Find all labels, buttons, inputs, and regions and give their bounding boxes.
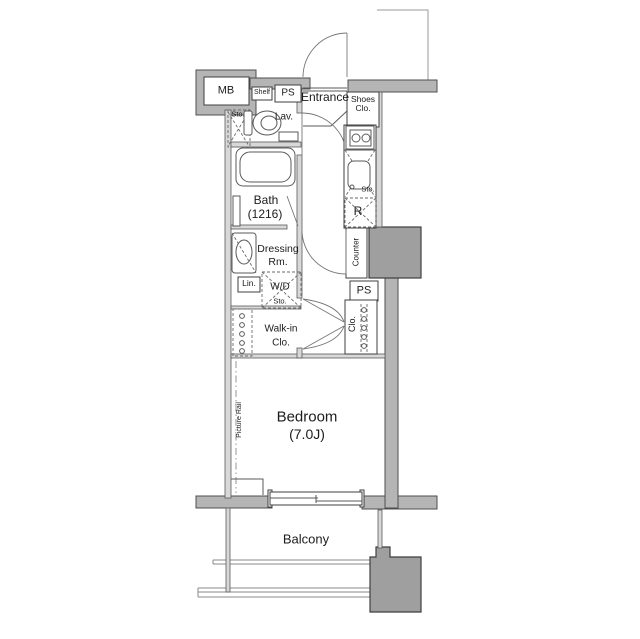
pillar-balcony <box>370 547 421 612</box>
mid-door-swing <box>302 230 346 274</box>
label-bedroom-l1: Bedroom <box>277 408 338 425</box>
label-refrigerator: R <box>354 205 363 219</box>
label-entrance: Entrance <box>301 91 349 105</box>
label-ps-top: PS <box>281 87 294 99</box>
label-picture-rail: Picture Rail <box>236 402 244 438</box>
label-bedroom-l2: (7.0J) <box>289 426 325 442</box>
entrance-door-swing <box>303 33 347 77</box>
label-sto-kitchen: Sto. <box>361 186 374 195</box>
label-dressing-l1: Dressing <box>257 243 298 255</box>
porch-outline <box>377 10 428 80</box>
label-wd: W/D <box>270 281 289 293</box>
label-walkin-l2: Clo. <box>272 337 290 349</box>
dressing-room <box>232 230 346 308</box>
toilet-tank <box>244 111 252 135</box>
bath-door <box>287 196 298 226</box>
closet-double-doors <box>303 299 344 349</box>
label-mb: MB <box>218 85 235 98</box>
label-lin: Lin. <box>242 279 256 289</box>
label-dressing-l2: Rm. <box>268 256 287 268</box>
label-walkin-l1: Walk-in <box>265 323 298 335</box>
label-shoes-l2: Clo. <box>355 104 370 114</box>
label-counter: Counter <box>351 238 360 266</box>
label-lav: Lav. <box>275 111 293 123</box>
lav-counter <box>279 132 298 141</box>
bath-rail <box>233 196 240 226</box>
label-bath-l1: Bath <box>254 194 279 208</box>
lav-door-swing <box>302 113 347 158</box>
pillar-mid-right <box>369 227 421 278</box>
floor-plan: MB Shelf PS Entrance Shoes Clo. Sto. Lav… <box>0 0 640 639</box>
label-ps-mid: PS <box>357 285 372 298</box>
label-sto-wd: Sto. <box>273 298 286 307</box>
label-bath-l2: (1216) <box>248 208 283 222</box>
label-balcony: Balcony <box>283 533 329 548</box>
balcony-window <box>268 490 364 507</box>
label-shelf: Shelf <box>254 89 270 97</box>
label-clo: Clo. <box>347 316 357 332</box>
balcony-railing <box>198 560 370 597</box>
outer-walls <box>196 70 437 509</box>
label-sto-toilet: Sto. <box>231 111 244 120</box>
